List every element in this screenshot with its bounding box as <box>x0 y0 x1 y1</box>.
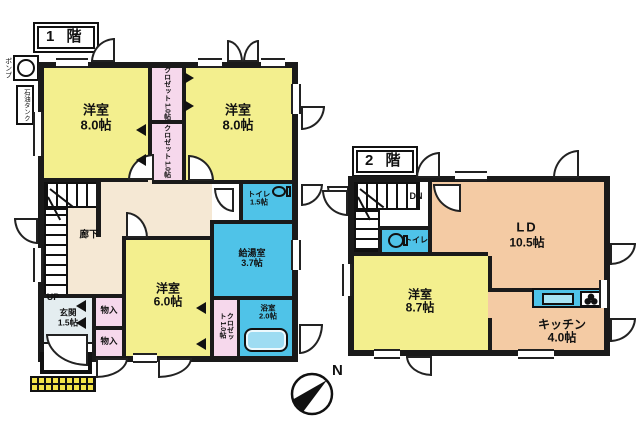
room-size: 10.5帖 <box>509 235 544 249</box>
entrance-porch-tiles <box>30 376 96 392</box>
door-marker <box>184 100 194 112</box>
room-label: 洋室 6.0帖 <box>154 283 183 310</box>
room-name: 洋室 <box>83 102 109 117</box>
window <box>33 112 43 156</box>
wall <box>210 220 292 224</box>
door-arc <box>158 358 192 378</box>
floor2-plan: DN トイレ LD 10.5帖 洋室 8.7帖 キッチン 4.0帖 <box>348 176 610 356</box>
room-size: 8.0帖 <box>222 117 253 132</box>
window <box>291 240 301 270</box>
wall <box>210 296 292 300</box>
room-label: 給湯室 3.7帖 <box>238 248 265 268</box>
window <box>291 84 301 114</box>
compass <box>286 364 356 424</box>
door-arc <box>553 150 579 178</box>
room-size: 1.0帖 <box>164 161 171 178</box>
door-arc <box>243 40 259 62</box>
room-label: 浴室 2.0帖 <box>259 305 277 322</box>
window <box>261 58 285 68</box>
room-name: クロゼット <box>164 66 171 101</box>
room-name: トイレ <box>404 236 428 245</box>
door-arc <box>227 40 243 62</box>
window <box>455 171 487 181</box>
floor2-title-box: 2 階 <box>352 146 418 177</box>
oil-tank-label: 石油タンク <box>22 89 29 122</box>
pump-label: ポンプ <box>4 58 11 79</box>
wall <box>122 240 126 356</box>
wall <box>428 182 432 252</box>
room-size: 1.0帖 <box>164 103 171 120</box>
toilet-bowl-icon <box>388 233 404 248</box>
window <box>56 58 88 68</box>
oil-tank-box: 石油タンク <box>16 85 34 125</box>
room-label: 洋室 8.0帖 <box>80 103 111 132</box>
room-label: トイレ 1.5帖 <box>248 191 271 208</box>
window <box>374 349 400 359</box>
door-arc <box>322 190 348 216</box>
room-size: 8.0帖 <box>80 117 111 132</box>
room-size: 8.7帖 <box>406 301 435 315</box>
room-name: キッチン <box>538 318 586 332</box>
room-size: 4.0帖 <box>548 331 577 345</box>
door-arc <box>299 324 323 354</box>
door-marker <box>136 154 146 166</box>
room-name: 洋室 <box>156 282 180 296</box>
window <box>133 353 157 363</box>
wall <box>378 226 382 252</box>
room-label: 洋室 8.7帖 <box>406 289 435 316</box>
up-text: UP <box>47 292 60 302</box>
door-marker <box>196 302 206 314</box>
window <box>518 349 554 359</box>
room-size: 2.0帖 <box>259 312 277 321</box>
room-label: クロゼット 1.0帖 <box>163 124 170 178</box>
door-marker <box>136 124 146 136</box>
window <box>342 264 352 296</box>
floor1-title-box: 1 階 <box>33 22 99 53</box>
window <box>599 280 609 308</box>
floor2-title: 2 階 <box>356 150 414 173</box>
bathtub-icon <box>244 328 288 352</box>
wall <box>354 252 488 256</box>
room-label: クロゼット 1.0帖 <box>219 313 234 342</box>
room-name: 給湯室 <box>238 248 265 258</box>
room-size: 3.7帖 <box>241 258 263 268</box>
room-name: 物入 <box>100 305 117 315</box>
kitchen-counter <box>532 288 604 308</box>
door-arc <box>14 218 38 244</box>
floor-plan-canvas: 1 階 ポンプ 石油タンク <box>0 0 640 425</box>
door-arc <box>96 358 128 378</box>
floor1-title: 1 階 <box>37 26 95 49</box>
room-label: クロゼット 1.0帖 <box>163 66 170 120</box>
pump-icon <box>13 55 39 81</box>
door-arc <box>301 184 323 206</box>
room-label: トイレ <box>404 237 428 246</box>
room-label: 物入 <box>100 306 117 316</box>
north-label: N <box>332 362 343 379</box>
room-label: LD 10.5帖 <box>509 220 544 249</box>
wall <box>378 226 432 230</box>
room-name: 洋室 <box>225 102 251 117</box>
room-name: 物入 <box>100 336 117 346</box>
compass-icon <box>286 364 356 424</box>
door-arc <box>610 318 636 342</box>
room-name: 洋室 <box>408 288 432 302</box>
door-arc <box>301 106 325 130</box>
wall <box>152 180 292 184</box>
room-label: 玄関 1.5帖 <box>58 308 78 327</box>
room-size: 1.5帖 <box>58 317 78 327</box>
toilet-tank-icon <box>286 186 291 197</box>
stairs-f1-left-flight <box>44 208 68 298</box>
wall <box>182 68 186 180</box>
wall <box>96 326 122 330</box>
stairs-up-label: UP <box>47 292 60 302</box>
door-arc <box>416 152 440 178</box>
window <box>198 58 222 68</box>
room-size: 1.5帖 <box>250 198 268 207</box>
room-label: 物入 <box>100 337 117 347</box>
door-arc <box>610 243 636 265</box>
dn-text: DN <box>410 191 423 201</box>
room-name: 廊下 <box>79 230 98 241</box>
room-size: 1.0帖 <box>219 321 226 338</box>
room-name: LD <box>516 219 537 234</box>
door-marker <box>196 338 206 350</box>
room-label: 洋室 8.0帖 <box>222 103 253 132</box>
floor1-plan: 洋室 8.0帖 洋室 8.0帖 クロゼット 1.0帖 クロゼット 1.0帖 廊下… <box>38 62 298 362</box>
pump-circle-icon <box>17 59 35 77</box>
stairs-dn-label: DN <box>410 191 423 201</box>
wall <box>488 318 492 350</box>
wall <box>210 220 214 356</box>
door-arc <box>214 188 234 212</box>
door-marker <box>184 72 194 84</box>
wall <box>237 300 240 356</box>
toilet-bowl-icon <box>272 186 286 197</box>
kitchen-sink-icon <box>542 293 574 305</box>
door-arc <box>406 356 432 376</box>
room-name: 玄関 <box>59 307 76 317</box>
wall <box>239 182 243 224</box>
window <box>33 248 43 282</box>
room-label: キッチン 4.0帖 <box>538 319 586 346</box>
wall <box>488 256 492 288</box>
room-size: 6.0帖 <box>154 295 183 309</box>
room-name: クロゼット <box>164 124 171 159</box>
room-label: 廊下 <box>79 231 98 242</box>
